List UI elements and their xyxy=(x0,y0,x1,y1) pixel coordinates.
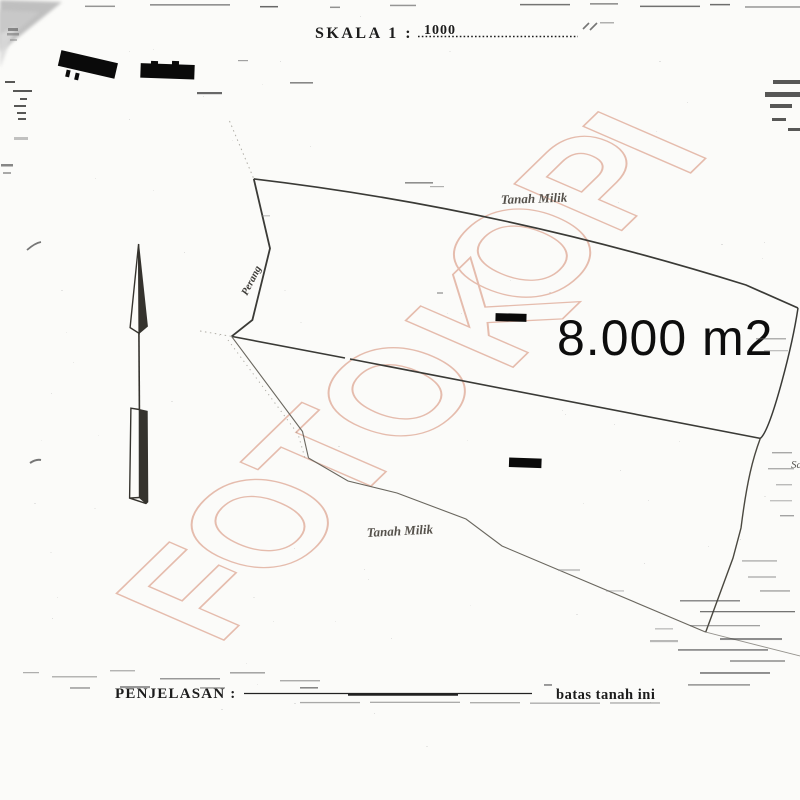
svg-text:1000: 1000 xyxy=(424,23,456,38)
svg-text:SKALA 1 :: SKALA 1 : xyxy=(315,25,413,42)
svg-text:batas tanah ini: batas tanah ini xyxy=(556,687,655,703)
svg-text:Tanah Milik: Tanah Milik xyxy=(366,522,434,540)
svg-text:FOTOKOPI: FOTOKOPI xyxy=(60,92,756,664)
svg-text:8.000 m2: 8.000 m2 xyxy=(557,310,773,366)
svg-text:Tanah Milik: Tanah Milik xyxy=(501,190,568,207)
svg-text:Perang: Perang xyxy=(240,264,264,297)
